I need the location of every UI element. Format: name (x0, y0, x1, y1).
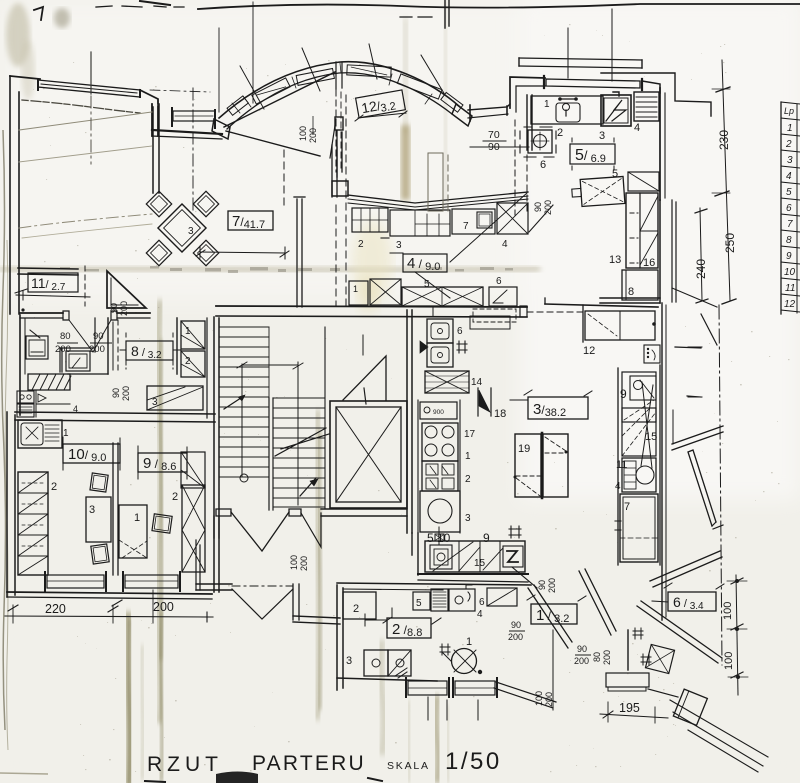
svg-text:8: 8 (786, 235, 792, 246)
svg-text:4: 4 (786, 171, 792, 182)
svg-text:100: 100 (723, 652, 735, 670)
svg-text:90: 90 (488, 141, 500, 153)
svg-text:4: 4 (477, 609, 483, 620)
svg-text:6: 6 (786, 203, 792, 214)
svg-text:3: 3 (465, 513, 471, 524)
svg-text:7: 7 (624, 501, 630, 513)
svg-text:5: 5 (424, 279, 430, 290)
svg-text:15: 15 (474, 558, 486, 569)
svg-text:2: 2 (785, 139, 792, 150)
svg-text:100: 100 (534, 691, 544, 706)
svg-text:13: 13 (609, 254, 621, 266)
svg-text:3: 3 (599, 130, 605, 142)
svg-text:200: 200 (547, 578, 557, 593)
svg-text:12: 12 (784, 299, 796, 310)
svg-text:100: 100 (298, 126, 308, 141)
svg-text:4: 4 (615, 481, 621, 492)
svg-text:200: 200 (543, 200, 553, 215)
svg-text:4: 4 (73, 404, 78, 414)
svg-text:8: 8 (628, 286, 634, 298)
svg-text:200: 200 (89, 344, 105, 355)
svg-text:RZUT: RZUT (147, 753, 223, 776)
svg-text:80: 80 (592, 652, 602, 662)
svg-text:200: 200 (119, 301, 129, 316)
svg-text:10: 10 (784, 267, 796, 278)
svg-text:90: 90 (111, 388, 121, 398)
svg-text:SKALA: SKALA (387, 760, 430, 772)
svg-text:4: 4 (502, 239, 508, 250)
svg-text:90: 90 (93, 331, 104, 342)
svg-text:7: 7 (787, 219, 793, 230)
svg-text:12: 12 (583, 345, 595, 357)
svg-text:9: 9 (786, 251, 792, 262)
svg-text:1: 1 (134, 512, 140, 524)
svg-text:5: 5 (416, 598, 422, 609)
svg-text:3: 3 (89, 504, 95, 516)
svg-text:195: 195 (619, 701, 640, 715)
svg-text:200: 200 (153, 600, 174, 614)
svg-text:16: 16 (643, 257, 655, 269)
svg-text:90: 90 (537, 580, 547, 590)
svg-text:2: 2 (557, 127, 563, 139)
svg-text:5: 5 (612, 168, 618, 180)
svg-text:6: 6 (479, 597, 485, 608)
svg-text:90: 90 (533, 202, 543, 212)
svg-text:4: 4 (634, 122, 640, 134)
svg-text:15: 15 (645, 431, 657, 443)
svg-text:6: 6 (457, 326, 463, 337)
svg-text:1: 1 (787, 123, 793, 134)
svg-text:1: 1 (63, 428, 69, 439)
svg-text:14: 14 (471, 377, 483, 388)
svg-text:1: 1 (544, 99, 550, 110)
svg-text:3: 3 (152, 397, 158, 408)
svg-text:900: 900 (433, 409, 444, 416)
svg-text:1: 1 (353, 284, 358, 294)
svg-text:1: 1 (465, 451, 471, 462)
svg-text:240: 240 (694, 259, 708, 279)
svg-text:17: 17 (464, 429, 476, 440)
svg-text:3: 3 (188, 226, 194, 237)
svg-text:80: 80 (60, 331, 71, 342)
svg-text:220: 220 (45, 602, 66, 616)
svg-text:Lp: Lp (784, 106, 794, 116)
svg-text:200: 200 (121, 386, 131, 401)
svg-text:230: 230 (717, 130, 731, 150)
svg-text:100: 100 (722, 602, 734, 620)
svg-text:3: 3 (396, 240, 402, 251)
svg-text:2: 2 (465, 474, 471, 485)
svg-text:200: 200 (508, 632, 523, 642)
svg-text:3: 3 (346, 655, 352, 667)
svg-text:1: 1 (185, 326, 191, 337)
svg-text:200: 200 (299, 556, 309, 571)
svg-text:70: 70 (488, 129, 500, 141)
svg-text:2: 2 (353, 603, 359, 615)
svg-text:18: 18 (494, 408, 506, 420)
svg-text:11: 11 (785, 283, 795, 294)
svg-text:5: 5 (786, 187, 792, 198)
svg-text:90: 90 (109, 303, 119, 313)
svg-text:2: 2 (51, 481, 57, 493)
svg-text:2: 2 (185, 356, 191, 367)
svg-text:1/50: 1/50 (445, 748, 502, 775)
svg-text:19: 19 (518, 443, 530, 455)
svg-text:200: 200 (55, 344, 71, 355)
svg-text:1: 1 (466, 636, 472, 648)
svg-text:3: 3 (787, 155, 793, 166)
svg-text:90: 90 (577, 644, 587, 654)
svg-text:9: 9 (620, 387, 627, 401)
svg-text:200: 200 (544, 692, 554, 707)
svg-text:9: 9 (483, 531, 490, 545)
svg-text:6: 6 (540, 159, 546, 171)
svg-text:2: 2 (358, 239, 364, 250)
svg-text:250: 250 (723, 233, 737, 253)
svg-text:100: 100 (289, 555, 299, 570)
svg-text:5 10: 5 10 (427, 531, 451, 545)
svg-text:200: 200 (574, 656, 589, 666)
svg-text:11: 11 (616, 459, 627, 471)
svg-text:90: 90 (511, 620, 521, 630)
svg-text:200: 200 (602, 650, 612, 665)
svg-text:7: 7 (463, 221, 469, 232)
svg-text:2: 2 (172, 491, 178, 503)
svg-text:PARTERU: PARTERU (252, 752, 366, 775)
svg-text:6: 6 (496, 276, 502, 287)
